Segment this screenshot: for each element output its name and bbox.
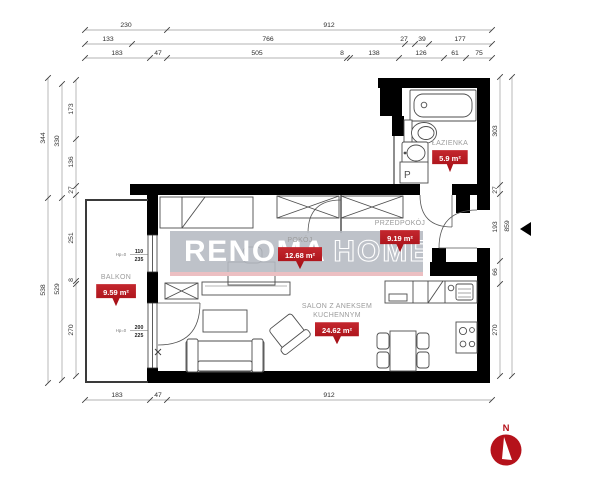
room-name: POKÓJ [278, 236, 322, 245]
room-name: SALON Z ANEKSEM [302, 302, 372, 311]
dim-label: 27 [492, 186, 499, 194]
dim-label: 27 [68, 186, 75, 194]
door-hp-label: Hp=0 [116, 328, 127, 333]
dim-label: 529 [54, 283, 61, 295]
window-height-label: 235 [135, 257, 144, 263]
dim-label: 538 [40, 284, 47, 296]
floor-plan-canvas: 230 912 133 766 27 39 177 183 47 505 8 1… [0, 0, 607, 502]
bathtub [410, 90, 476, 121]
dim-label: 344 [40, 132, 47, 144]
compass-north-label: N [503, 423, 510, 434]
door-width-label: 200 [135, 325, 144, 331]
room-name: PRZEDPOKÓJ [375, 219, 425, 228]
dim-label: 66 [492, 268, 499, 276]
entrance-arrow-icon [520, 222, 531, 236]
dim-label: 193 [492, 221, 499, 233]
window-width-label: 110 [135, 249, 143, 255]
dim-label: 126 [415, 50, 427, 57]
dim-label: 303 [492, 125, 499, 137]
dim-label: 505 [251, 50, 263, 57]
dim-label: 8 [68, 278, 75, 282]
dim-label: 330 [54, 135, 61, 147]
dim-label: 75 [475, 50, 483, 57]
living-room-cabinet [165, 283, 198, 299]
dim-label: 912 [323, 22, 335, 29]
room-label-lazienka: ŁAZIENKA 5.9 m² [432, 139, 468, 172]
room-label-przedpokoj: PRZEDPOKÓJ 9.19 m² [375, 219, 425, 252]
dim-label: 177 [454, 36, 466, 43]
compass-rose: N [491, 423, 522, 466]
stove [456, 322, 477, 353]
dim-label: 136 [68, 156, 75, 168]
kitchen-counter [385, 281, 477, 303]
washing-machine-label: P [404, 170, 411, 181]
room-area-badge: 9.19 m² [380, 230, 420, 252]
coffee-table [203, 310, 247, 332]
room-name: ŁAZIENKA [432, 139, 468, 148]
sofa [186, 339, 264, 372]
room-area-badge: 12.68 m² [278, 247, 322, 269]
dim-label: 27 [400, 36, 408, 43]
room-name: BALKON [96, 273, 136, 282]
dim-label: 39 [418, 36, 426, 43]
dim-label: 270 [68, 324, 75, 336]
dim-label: 138 [368, 50, 380, 57]
dining-table [377, 331, 429, 371]
room-label-pokoj: POKÓJ 12.68 m² [278, 236, 322, 269]
dim-label: 912 [323, 392, 335, 399]
window-hp-label: Hp=0 [116, 252, 127, 257]
door-height-label: 225 [135, 333, 144, 339]
dim-label: 183 [111, 392, 123, 399]
sideboard [202, 282, 290, 295]
room-label-balkon: BALKON 9.59 m² [96, 273, 136, 306]
room-name: KUCHENNYM [302, 311, 372, 320]
hallway-wardrobes [277, 196, 403, 218]
dim-label: 47 [154, 392, 162, 399]
bedroom-wardrobe [160, 197, 253, 228]
room-area-badge: 9.59 m² [96, 284, 136, 306]
dim-label: 230 [120, 22, 132, 29]
dim-label: 251 [68, 232, 75, 244]
dim-label: 8 [340, 50, 344, 57]
dim-label: 859 [504, 220, 511, 232]
dim-label: 766 [262, 36, 274, 43]
room-area-badge: 24.62 m² [315, 322, 359, 344]
room-label-salon: SALON Z ANEKSEM KUCHENNYM 24.62 m² [302, 302, 372, 344]
dim-label: 47 [154, 50, 162, 57]
dim-label: 61 [451, 50, 459, 57]
dim-label: 183 [111, 50, 123, 57]
watermark-underline [170, 272, 423, 276]
dim-label: 270 [492, 324, 499, 336]
room-area-badge: 5.9 m² [432, 150, 468, 172]
dim-label: 133 [102, 36, 114, 43]
dim-label: 173 [68, 103, 75, 115]
washing-machine: P [400, 162, 428, 183]
